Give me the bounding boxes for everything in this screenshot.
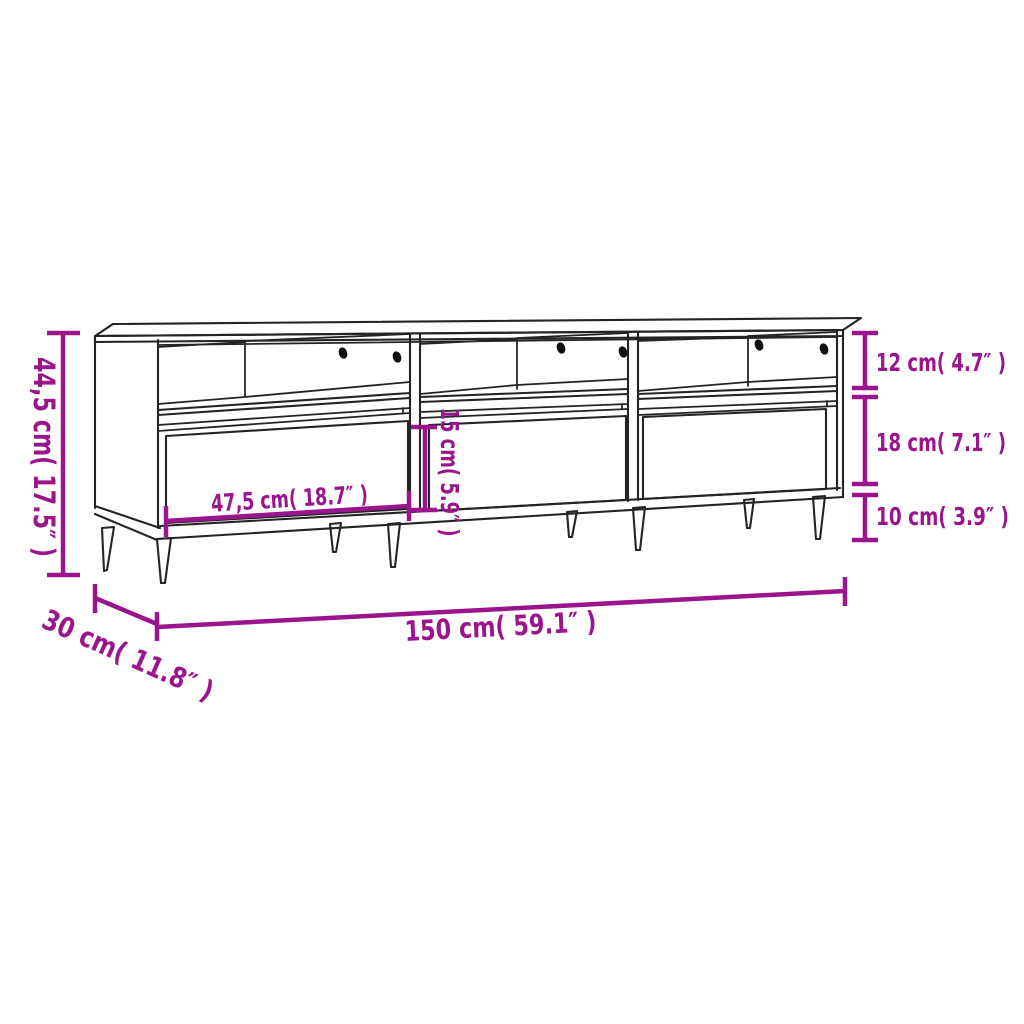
section1-cable-hole-2 [391,350,403,364]
dim-drawer-width: 47,5 cm( 18.7″ ) [166,480,409,537]
top-panel-front-edge [95,330,843,342]
section2-cable-hole-1 [555,341,567,355]
product-dimension-diagram: 44,5 cm( 17.5″ ) 12 cm( 4.7″ ) 18 cm( 7.… [0,0,1024,1024]
dim-overall-width: 150 cm( 59.1″ ) [157,577,845,648]
dim-leg-height-label: 10 cm( 3.9″ ) [876,502,1009,531]
leg-1 [102,527,114,571]
section2-shelf-back-edge [420,379,628,394]
diagram-canvas: 44,5 cm( 17.5″ ) 12 cm( 4.7″ ) 18 cm( 7.… [0,0,1024,1024]
dim-drawer-section-height: 18 cm( 7.1″ ) [852,397,1006,484]
leg-5 [567,511,577,537]
dimension-annotations: 44,5 cm( 17.5″ ) 12 cm( 4.7″ ) 18 cm( 7.… [27,333,1009,708]
section-3 [638,332,837,499]
dim-top-compartment-height: 12 cm( 4.7″ ) [852,333,1006,388]
leg-4 [388,523,400,567]
dim-overall-depth-label: 30 cm( 11.8″ ) [37,603,219,708]
cabinet-drawing [95,318,861,583]
left-side-panel [95,338,160,540]
leg-8 [813,496,825,539]
section3-drawer-front [643,409,826,499]
leg-6 [633,507,645,550]
leg-2 [157,538,171,583]
dim-overall-height-label: 44,5 cm( 17.5″ ) [27,357,61,557]
dim-overall-depth: 30 cm( 11.8″ ) [37,584,219,708]
dim-drawer-section-height-label: 18 cm( 7.1″ ) [876,428,1006,457]
dim-leg-height: 10 cm( 3.9″ ) [852,495,1009,540]
right-side-panel [837,330,843,497]
section1-cable-hole-1 [337,346,349,360]
section3-cable-hole-2 [818,342,830,356]
dim-overall-height: 44,5 cm( 17.5″ ) [27,333,80,575]
dim-top-compartment-height-label: 12 cm( 4.7″ ) [876,348,1006,377]
section3-cable-hole-1 [753,338,765,352]
dim-30-line [95,598,157,624]
section3-shelf-back-edge [638,377,837,391]
dim-drawer-front-height-label: 15 cm( 5.9″ ) [435,408,464,537]
